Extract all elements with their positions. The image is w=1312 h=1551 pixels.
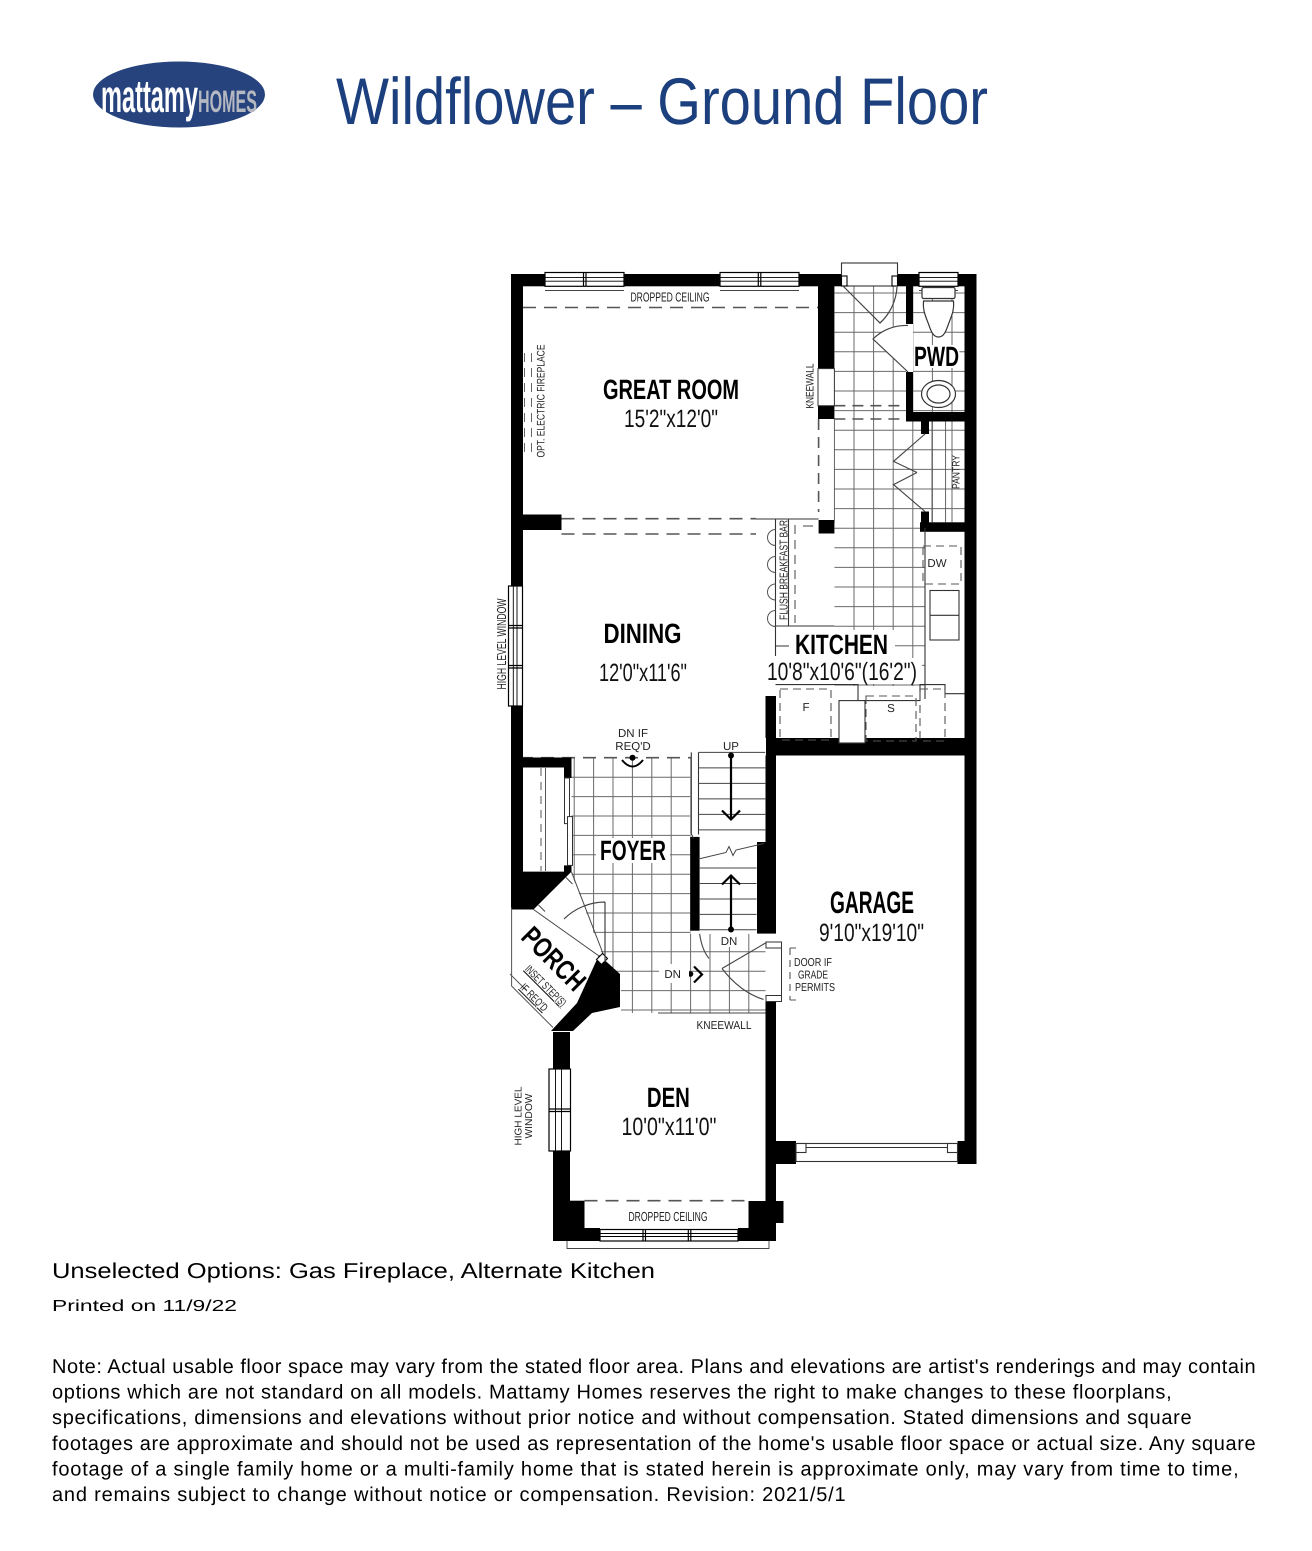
- svg-text:mattamy: mattamy: [101, 70, 198, 122]
- svg-text:DN IF: DN IF: [618, 728, 648, 740]
- svg-text:DEN: DEN: [647, 1082, 690, 1113]
- svg-text:HIGH LEVEL WINDOW: HIGH LEVEL WINDOW: [494, 598, 509, 689]
- svg-text:UP: UP: [723, 741, 739, 753]
- svg-text:DROPPED CEILING: DROPPED CEILING: [629, 1209, 708, 1224]
- svg-text:PANTRY: PANTRY: [951, 455, 963, 489]
- svg-text:OPT. ELECTRIC FIREPLACE: OPT. ELECTRIC FIREPLACE: [536, 345, 548, 458]
- svg-text:KNEEWALL: KNEEWALL: [697, 1020, 753, 1032]
- svg-text:footages are approximate and s: footages are approximate and should not …: [52, 1433, 1256, 1455]
- svg-text:12'0"x11'6": 12'0"x11'6": [599, 659, 687, 687]
- svg-text:DINING: DINING: [604, 618, 682, 649]
- svg-text:DOOR IF: DOOR IF: [794, 957, 832, 969]
- svg-text:WINDOW: WINDOW: [524, 1093, 535, 1139]
- svg-text:F: F: [802, 702, 809, 714]
- svg-text:DW: DW: [927, 558, 946, 570]
- svg-text:PERMITS: PERMITS: [795, 982, 835, 994]
- svg-text:PWD: PWD: [914, 341, 959, 372]
- svg-text:specifications, dimensions and: specifications, dimensions and elevation…: [52, 1407, 1192, 1429]
- svg-text:footage of a single family hom: footage of a single family home or a mul…: [52, 1458, 1239, 1480]
- svg-text:HIGH LEVEL: HIGH LEVEL: [514, 1086, 525, 1145]
- svg-text:GARAGE: GARAGE: [830, 885, 914, 920]
- svg-text:FOYER: FOYER: [600, 835, 666, 866]
- svg-text:options which are not standard: options which are not standard on all mo…: [52, 1382, 1172, 1404]
- svg-text:FLUSH BREAKFAST BAR: FLUSH BREAKFAST BAR: [779, 520, 791, 620]
- svg-text:DN: DN: [664, 969, 681, 981]
- svg-text:DROPPED CEILING: DROPPED CEILING: [631, 290, 710, 305]
- svg-text:10'0"x11'0": 10'0"x11'0": [622, 1113, 717, 1141]
- svg-text:Note: Actual usable floor spac: Note: Actual usable floor space may vary…: [52, 1356, 1256, 1378]
- svg-text:KNEEWALL: KNEEWALL: [805, 364, 817, 409]
- svg-text:REQ'D: REQ'D: [615, 741, 650, 753]
- svg-text:15'2"x12'0": 15'2"x12'0": [624, 405, 718, 433]
- svg-text:and remains subject to change: and remains subject to change without no…: [52, 1484, 846, 1506]
- svg-text:9'10"x19'10": 9'10"x19'10": [819, 919, 924, 947]
- svg-text:Wildflower – Ground Floor: Wildflower – Ground Floor: [336, 64, 988, 138]
- svg-text:KITCHEN: KITCHEN: [795, 629, 888, 660]
- svg-text:S: S: [887, 703, 895, 715]
- svg-text:GRADE: GRADE: [798, 970, 828, 982]
- svg-text:Unselected Options: Gas Firepl: Unselected Options: Gas Fireplace, Alter…: [52, 1259, 655, 1283]
- svg-text:Printed on 11/9/22: Printed on 11/9/22: [52, 1298, 237, 1315]
- svg-text:DN: DN: [721, 936, 738, 948]
- svg-text:10'8"x10'6"(16'2"): 10'8"x10'6"(16'2"): [767, 658, 917, 686]
- svg-text:HOMES: HOMES: [198, 84, 257, 119]
- svg-text:GREAT ROOM: GREAT ROOM: [603, 374, 739, 405]
